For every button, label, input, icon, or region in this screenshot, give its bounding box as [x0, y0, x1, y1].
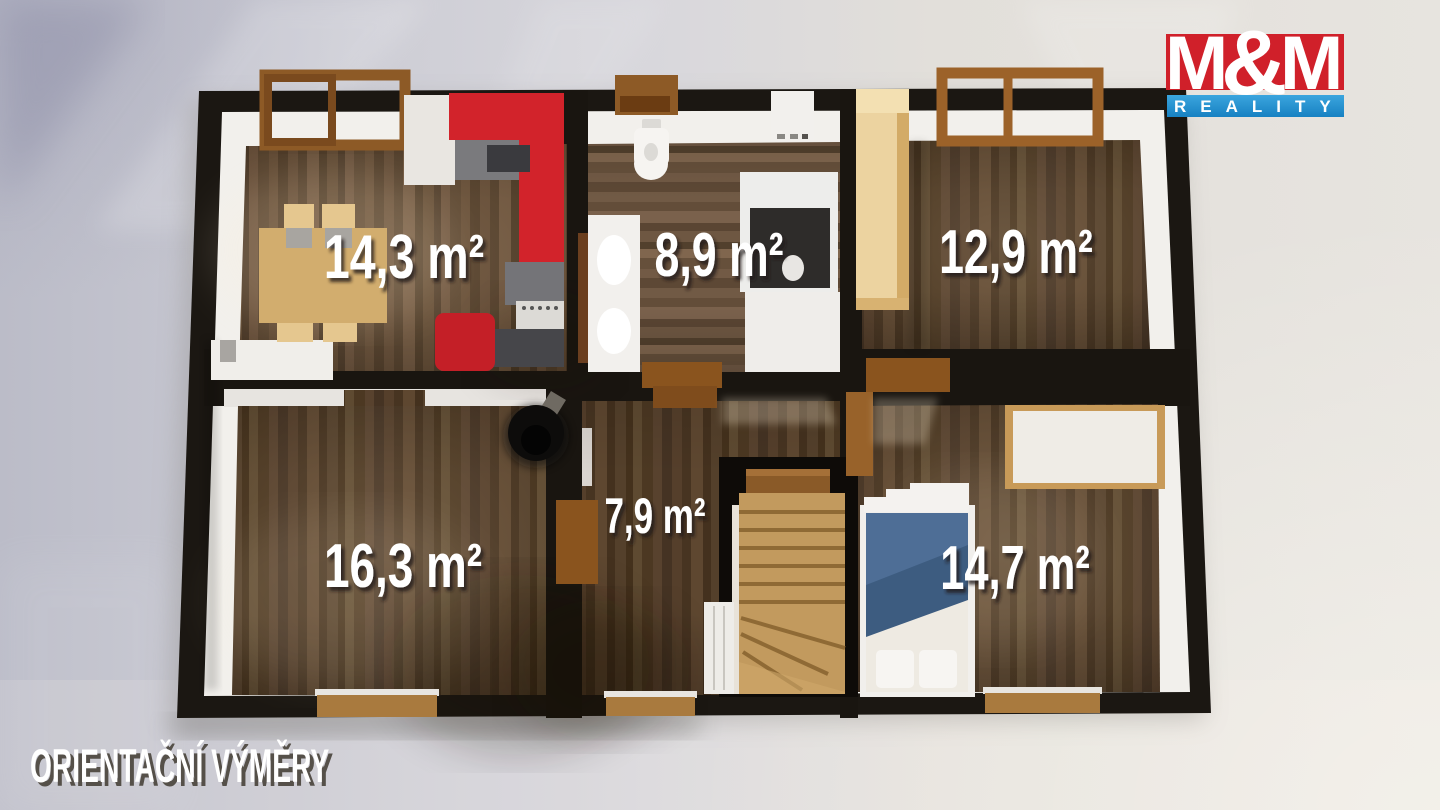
svg-text:14,7 m²: 14,7 m²	[940, 535, 1090, 603]
svg-text:ORIENTAČNÍ VÝMĚRY: ORIENTAČNÍ VÝMĚRY	[30, 738, 329, 793]
svg-text:7,9 m²: 7,9 m²	[604, 489, 705, 545]
svg-text:M: M	[1165, 21, 1228, 106]
svg-text:M: M	[1280, 21, 1343, 106]
svg-text:REALITY: REALITY	[1174, 97, 1345, 116]
svg-text:8,9 m²: 8,9 m²	[654, 221, 783, 290]
svg-text:12,9 m²: 12,9 m²	[939, 218, 1093, 287]
svg-text:14,3 m²: 14,3 m²	[324, 221, 484, 291]
svg-text:16,3 m²: 16,3 m²	[324, 531, 482, 600]
